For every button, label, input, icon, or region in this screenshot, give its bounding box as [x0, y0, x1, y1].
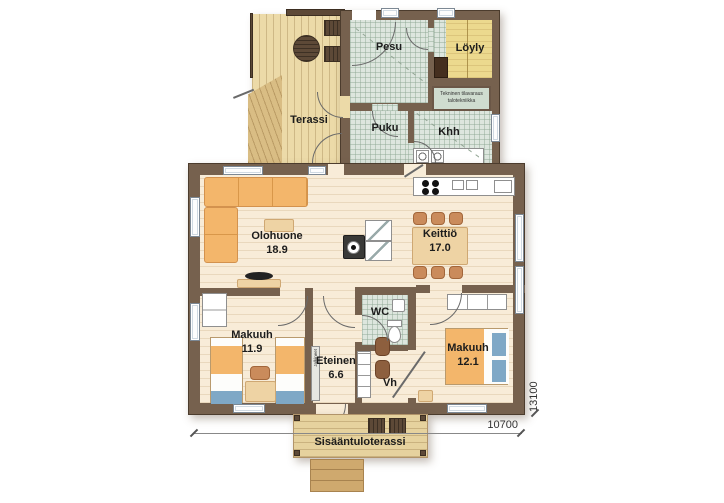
- technical-space-label-line1: Tekninen tilavaraus: [433, 91, 490, 98]
- dining-chair: [413, 212, 427, 225]
- room-area: 17.0: [413, 242, 467, 256]
- door-gap: [372, 104, 398, 111]
- window: [491, 114, 500, 142]
- terrace-railing-top: [286, 9, 345, 16]
- sofa: [204, 177, 308, 207]
- interior-wall: [355, 295, 362, 315]
- terrace-post: [294, 450, 300, 456]
- desk-chair: [250, 366, 270, 380]
- room-label-vh: Vh: [379, 377, 401, 391]
- window: [515, 266, 524, 314]
- room-name: Makuuh: [215, 329, 289, 343]
- room-area: 11.9: [215, 343, 289, 357]
- room-area: 6.6: [310, 369, 362, 383]
- fireplace-glass-panel: [365, 220, 392, 241]
- fireplace-flue-center: [351, 245, 356, 250]
- stove-cooktop: [419, 179, 444, 195]
- bed-foot-throw: [211, 391, 242, 404]
- fireplace-glass-panel: [365, 241, 392, 261]
- burner: [422, 188, 429, 195]
- dimension-line-width: [193, 433, 522, 434]
- bed-sheet: [276, 374, 304, 391]
- room-label-khh: Khh: [432, 126, 466, 140]
- room-label-loyly: Löyly: [445, 42, 495, 56]
- dimension-label-depth: 13100: [528, 368, 540, 412]
- terrace-round-table: [293, 35, 320, 62]
- dining-chair: [413, 266, 427, 279]
- entrance-steps: [310, 459, 364, 492]
- room-label-sisaantuloterassi: Sisääntuloterassi: [300, 436, 420, 450]
- room-area: 12.1: [431, 356, 505, 370]
- technical-space-label-line2: talotekniikka: [433, 98, 490, 105]
- interior-wall: [416, 285, 430, 293]
- dimension-tick: [517, 429, 525, 437]
- door-gap: [328, 164, 344, 175]
- window: [190, 197, 200, 237]
- terrace-post: [294, 415, 300, 421]
- sofa-chaise: [204, 207, 238, 263]
- interior-wall: [355, 287, 416, 295]
- room-label-terassi: Terassi: [280, 114, 338, 128]
- window: [447, 404, 487, 413]
- floor-plan-page: { "rooms": { "pesu": {"name": "Pesu"}, "…: [0, 0, 724, 503]
- room-area: 18.9: [240, 244, 314, 258]
- desk: [245, 381, 276, 402]
- dimension-label-width: 10700: [452, 419, 518, 431]
- room-label-olohuone: Olohuone 18.9: [240, 230, 314, 258]
- room-name: Keittiö: [413, 228, 467, 242]
- dining-chair: [449, 266, 463, 279]
- tv: [245, 272, 273, 280]
- dining-chair: [431, 212, 445, 225]
- wardrobe: [202, 293, 227, 327]
- interior-wall: [408, 398, 416, 403]
- burner: [432, 188, 439, 195]
- room-label-pesu: Pesu: [365, 41, 413, 55]
- tv-bench: [237, 279, 281, 288]
- door-gap: [352, 10, 376, 20]
- bedside-table: [418, 390, 433, 402]
- toilet-tank: [387, 320, 402, 327]
- window: [381, 8, 399, 18]
- burner: [422, 180, 429, 187]
- window: [223, 166, 263, 175]
- bed-foot-throw: [276, 391, 304, 404]
- room-label-eteinen: Eteinen 6.6: [310, 355, 362, 383]
- window: [515, 214, 524, 262]
- kitchen-sink: [466, 180, 478, 190]
- window: [233, 404, 265, 413]
- room-label-keittio: Keittiö 17.0: [413, 228, 467, 256]
- room-label-makuuhuone-1: Makuuh 11.9: [215, 329, 289, 357]
- terrace-chair: [389, 418, 406, 434]
- terrace-chair: [368, 418, 385, 434]
- window: [190, 303, 200, 341]
- window: [308, 166, 326, 175]
- kitchen-sink: [452, 180, 464, 190]
- burner: [432, 180, 439, 187]
- terrace-post: [420, 415, 426, 421]
- kitchen-appliance: [494, 180, 512, 193]
- room-name: Makuuh: [431, 342, 505, 356]
- dining-chair: [431, 266, 445, 279]
- room-name: Olohuone: [240, 230, 314, 244]
- room-label-wc: WC: [368, 306, 392, 320]
- room-label-makuuhuone-2: Makuuh 12.1: [431, 342, 505, 370]
- dining-chair: [449, 212, 463, 225]
- terrace-post: [420, 450, 426, 456]
- wc-sink: [392, 299, 405, 312]
- door-gap: [428, 28, 434, 52]
- sauna-stove: [434, 57, 448, 78]
- window: [437, 8, 455, 18]
- terrace-railing-left: [250, 13, 253, 78]
- room-label-puku: Puku: [362, 122, 408, 136]
- bed-sheet: [211, 374, 242, 391]
- interior-wall: [408, 287, 416, 350]
- room-name: Eteinen: [310, 355, 362, 369]
- technical-space-label: Tekninen tilavaraus talotekniikka: [433, 91, 490, 104]
